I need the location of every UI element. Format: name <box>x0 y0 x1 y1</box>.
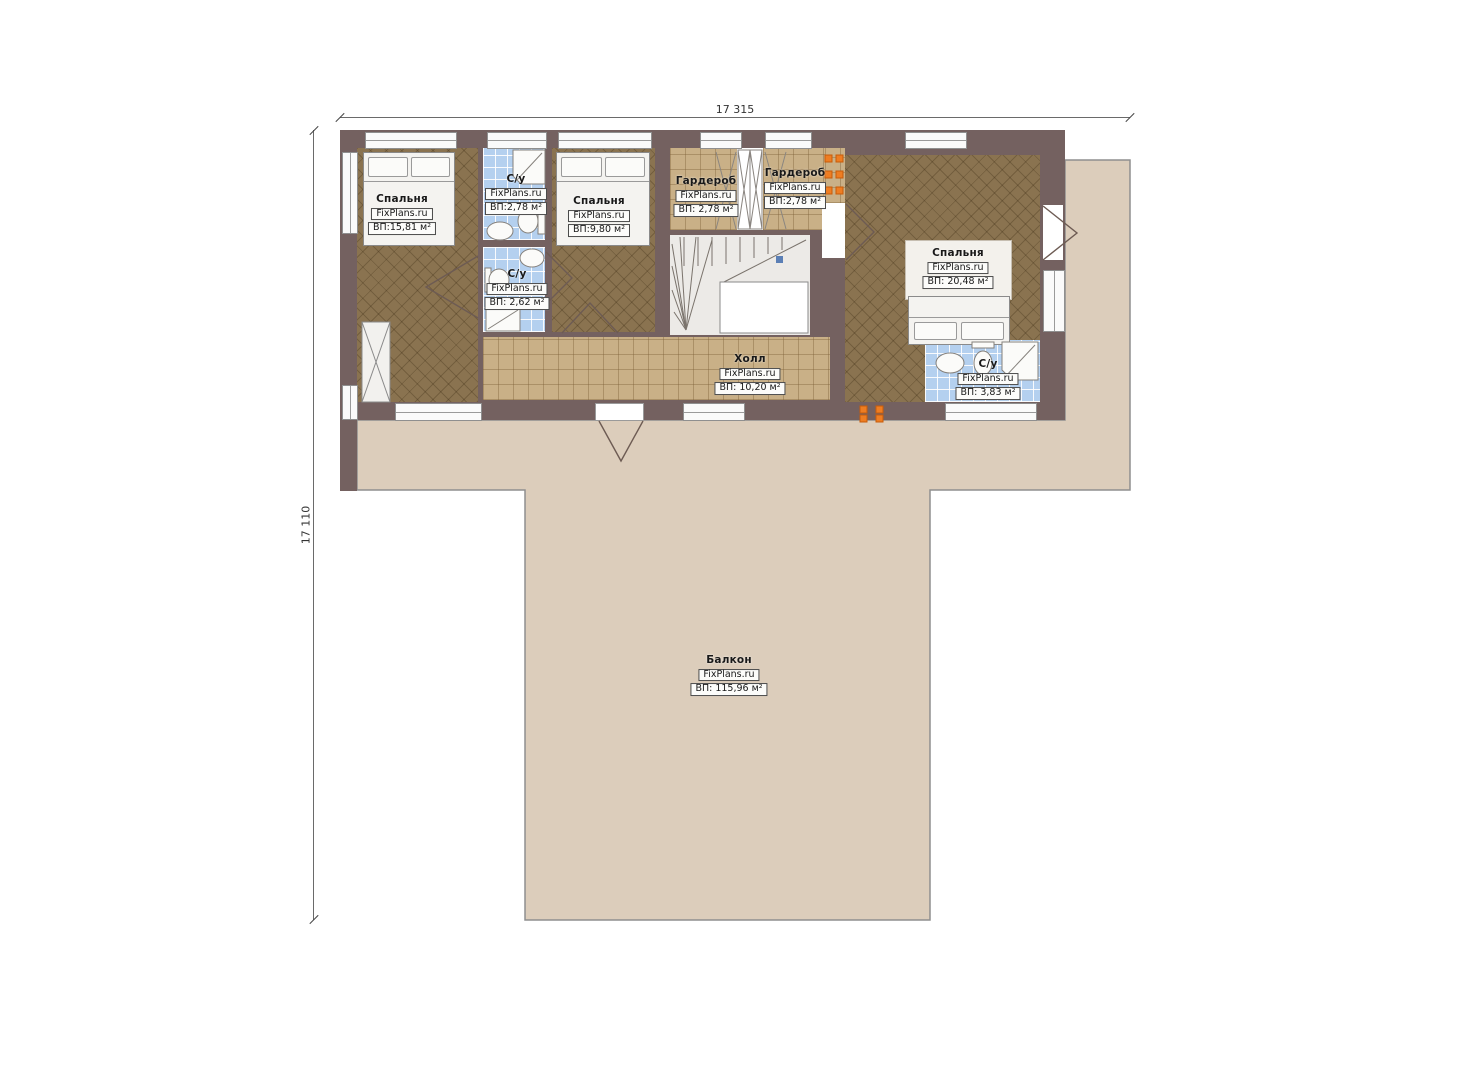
room-area: ВП: 2,78 м² <box>673 204 738 217</box>
dimension-height-label: 17 110 <box>300 503 313 548</box>
room-label-wardrobe-1: Гардероб FixPlans.ru ВП: 2,78 м² <box>673 175 738 217</box>
room-label-bedroom-1: Спальня FixPlans.ru ВП:15,81 м² <box>368 193 436 235</box>
room-name: Спальня <box>932 247 984 259</box>
room-name: Балкон <box>706 654 752 666</box>
window <box>905 132 967 149</box>
window <box>700 132 742 149</box>
room-brand: FixPlans.ru <box>764 182 825 195</box>
room-brand: FixPlans.ru <box>485 188 546 201</box>
bed-blanket-line <box>364 181 454 182</box>
dimension-line-left <box>313 130 314 920</box>
window <box>1043 270 1065 332</box>
room-area: ВП: 115,96 м² <box>690 683 767 696</box>
room-name: Спальня <box>573 195 625 207</box>
wardrobe-doors-strip <box>737 148 763 230</box>
window <box>765 132 812 149</box>
room-area: ВП:9,80 м² <box>568 224 630 237</box>
balcony-door-opening <box>1043 205 1063 260</box>
room-label-bedroom-3: Спальня FixPlans.ru ВП: 20,48 м² <box>922 247 993 289</box>
room-area: ВП: 10,20 м² <box>714 382 785 395</box>
door-opening <box>822 203 845 258</box>
room-area: ВП: 20,48 м² <box>922 276 993 289</box>
window <box>558 132 652 149</box>
room-name: Гардероб <box>765 167 826 179</box>
balcony-door-opening <box>595 403 644 421</box>
room-label-bathroom-mid: С/у FixPlans.ru ВП: 2,62 м² <box>484 268 549 310</box>
window <box>342 152 358 234</box>
room-name: Спальня <box>376 193 428 205</box>
room-label-balcony: Балкон FixPlans.ru ВП: 115,96 м² <box>690 654 767 696</box>
pillow <box>605 157 645 177</box>
window <box>487 132 547 149</box>
pillow <box>961 322 1004 340</box>
room-brand: FixPlans.ru <box>927 262 988 275</box>
floor-plan-canvas: Спальня FixPlans.ru ВП:15,81 м² С/у FixP… <box>0 0 1474 1080</box>
room-area: ВП:2,78 м² <box>485 202 547 215</box>
window <box>945 403 1037 421</box>
room-area: ВП: 2,62 м² <box>484 297 549 310</box>
window <box>365 132 457 149</box>
lamp-niche <box>825 148 845 203</box>
left-wall-extension <box>340 420 357 491</box>
room-brand: FixPlans.ru <box>957 373 1018 386</box>
room-brand: FixPlans.ru <box>675 190 736 203</box>
bed-blanket-line <box>909 317 1009 318</box>
pillow <box>561 157 602 177</box>
window <box>395 403 482 421</box>
pillow <box>368 157 408 177</box>
room-area: ВП: 3,83 м² <box>955 387 1020 400</box>
room-label-bathroom-right: С/у FixPlans.ru ВП: 3,83 м² <box>955 358 1020 400</box>
room-brand: FixPlans.ru <box>371 208 432 221</box>
room-label-hall: Холл FixPlans.ru ВП: 10,20 м² <box>714 353 785 395</box>
room-name: Холл <box>734 353 766 365</box>
room-name: С/у <box>506 173 525 185</box>
room-name: Гардероб <box>676 175 737 187</box>
stairwell <box>670 235 810 335</box>
room-label-bedroom-2: Спальня FixPlans.ru ВП:9,80 м² <box>568 195 630 237</box>
dimension-line-top <box>340 117 1130 118</box>
pillow <box>411 157 450 177</box>
room-label-bathroom-top: С/у FixPlans.ru ВП:2,78 м² <box>485 173 547 215</box>
bed <box>908 296 1010 345</box>
window <box>683 403 745 421</box>
room-area: ВП:2,78 м² <box>764 196 826 209</box>
dimension-width-label: 17 315 <box>713 103 758 116</box>
room-label-wardrobe-2: Гардероб FixPlans.ru ВП:2,78 м² <box>764 167 826 209</box>
room-name: С/у <box>508 268 527 280</box>
room-area: ВП:15,81 м² <box>368 222 436 235</box>
room-name: С/у <box>979 358 998 370</box>
room-brand: FixPlans.ru <box>719 368 780 381</box>
bed-blanket-line <box>557 181 649 182</box>
room-brand: FixPlans.ru <box>486 283 547 296</box>
room-brand: FixPlans.ru <box>698 669 759 682</box>
window <box>342 385 358 420</box>
pillow <box>914 322 957 340</box>
room-brand: FixPlans.ru <box>568 210 629 223</box>
